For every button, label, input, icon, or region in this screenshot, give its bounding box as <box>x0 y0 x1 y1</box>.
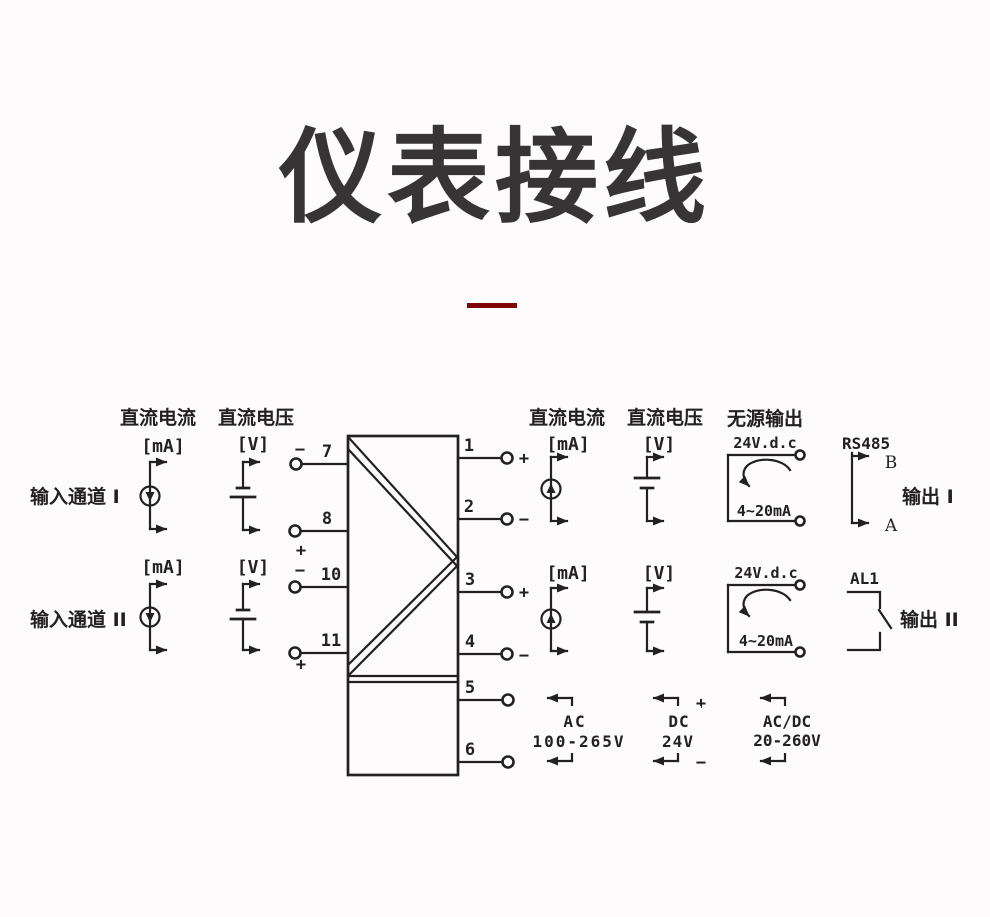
input-channel-2-ma-unit: [mA] <box>141 557 184 578</box>
terminal-2-circle <box>502 514 513 525</box>
input-header-voltage: 直流电压 <box>218 406 294 429</box>
power-dc-range: 24V <box>662 732 694 751</box>
terminal-4-circle <box>502 649 513 660</box>
out1-loop-top-terminal <box>796 451 805 460</box>
ch2-current-arrow-down <box>146 613 155 623</box>
output-header-voltage: 直流电压 <box>627 406 703 429</box>
input-header-current: 直流电流 <box>120 406 196 429</box>
terminal-8-sign: + <box>296 541 306 561</box>
isolation-diagonal-2b <box>349 566 457 675</box>
page: 仪表接线 7 − 8 + <box>0 0 990 917</box>
out2-passive-range: 4~20mA <box>739 632 793 650</box>
power-acdc-range: 20-260V <box>753 731 821 750</box>
terminal-2-number: 2 <box>464 497 474 517</box>
terminal-7-circle <box>291 459 302 470</box>
input-channel-1-v-unit: [V] <box>237 434 270 455</box>
terminal-1-sign: + <box>519 449 529 469</box>
output-row-1: [mA] [V] 24V.d.c 4~20mA RS485 <box>542 434 954 536</box>
power-ac: AC 100-265V <box>528 698 629 761</box>
terminal-5-number: 5 <box>465 678 475 698</box>
terminal-4-sign: − <box>519 646 529 666</box>
input-channel-2: 输入通道 II [mA] [V] <box>30 557 269 650</box>
output-row-2: [mA] [V] 24V.d.c 4~20mA AL1 <box>542 563 959 657</box>
terminal-11-sign: + <box>296 655 306 675</box>
out2-passive-voltage: 24V.d.c <box>734 564 797 582</box>
al1-contact-bottom <box>848 633 880 650</box>
terminal-1-number: 1 <box>464 436 474 456</box>
terminal-8-number: 8 <box>322 509 332 529</box>
wiring-diagram: 7 − 8 + 10 − 11 + 1 + 2 − <box>0 0 990 917</box>
block-outline <box>348 436 458 775</box>
output-1-label: 输出 I <box>902 485 954 508</box>
power-ac-type: AC <box>563 712 586 731</box>
isolator-block <box>348 436 458 775</box>
out1-passive-range: 4~20mA <box>737 502 791 520</box>
al1-contact-blade <box>879 610 891 628</box>
power-ac-range: 100-265V <box>532 732 625 751</box>
out1-current-arrow-up <box>547 484 556 494</box>
power-acdc: AC/DC 20-260V <box>749 698 826 761</box>
terminal-6-number: 6 <box>465 740 475 760</box>
out1-loop-bottom-terminal <box>796 517 805 526</box>
terminal-3-sign: + <box>519 583 529 603</box>
left-terminals: 7 − 8 + 10 − 11 + <box>290 440 349 675</box>
out1-bus-label: RS485 <box>842 434 890 453</box>
input-channel-1-label: 输入通道 I <box>30 485 120 508</box>
terminal-8-circle <box>290 526 301 537</box>
out2-alarm-label: AL1 <box>850 569 879 588</box>
out2-loop-arrow-icon <box>744 590 790 616</box>
terminal-10-sign: − <box>295 561 305 581</box>
input-channel-2-v-unit: [V] <box>237 557 270 578</box>
al1-contact-top <box>848 592 880 608</box>
output-header-passive: 无源输出 <box>727 407 803 430</box>
terminal-5-circle <box>503 695 514 706</box>
terminal-3-number: 3 <box>465 570 475 590</box>
terminal-2-sign: − <box>519 510 529 530</box>
input-channel-2-label: 输入通道 II <box>30 608 127 631</box>
input-channel-1: 输入通道 I [mA] [V] <box>30 434 269 530</box>
out2-current-arrow-up <box>547 614 556 624</box>
terminal-10-circle <box>290 582 301 593</box>
power-supply-options: AC 100-265V + − DC 24V AC/DC 2 <box>528 694 826 773</box>
terminal-6-circle <box>503 757 514 768</box>
terminal-10-number: 10 <box>321 565 341 585</box>
terminal-4-number: 4 <box>465 632 475 652</box>
out1-v-unit: [V] <box>643 434 676 455</box>
out1-loop-arrow-icon <box>744 460 790 486</box>
out2-ma-unit: [mA] <box>546 563 589 584</box>
output-2-label: 输出 II <box>900 608 959 631</box>
isolation-diagonal-1a <box>349 438 457 557</box>
terminal-7-sign: − <box>295 440 305 460</box>
out2-v-unit: [V] <box>643 563 676 584</box>
power-dc: + − DC 24V <box>654 694 706 773</box>
terminal-11-number: 11 <box>321 631 341 651</box>
rs485-a-label: A <box>884 516 898 536</box>
out1-passive-voltage: 24V.d.c <box>733 434 796 452</box>
terminal-7-number: 7 <box>322 442 332 462</box>
terminal-1-circle <box>502 453 513 464</box>
isolation-diagonal-2a <box>349 557 457 664</box>
power-acdc-type: AC/DC <box>763 712 811 731</box>
power-dc-type: DC <box>668 712 689 731</box>
terminal-3-circle <box>502 587 513 598</box>
output-header-current: 直流电流 <box>529 406 605 429</box>
out2-loop-top-terminal <box>796 581 805 590</box>
out2-loop-bottom-terminal <box>796 648 805 657</box>
ch1-current-arrow-down <box>146 492 155 502</box>
isolation-diagonal-1b <box>349 450 457 566</box>
rs485-b-label: B <box>885 453 898 473</box>
power-dc-minus-sign: − <box>696 753 706 773</box>
right-terminals: 1 + 2 − 3 + 4 − 5 6 <box>458 436 529 768</box>
out1-ma-unit: [mA] <box>546 434 589 455</box>
input-channel-1-ma-unit: [mA] <box>141 436 184 457</box>
